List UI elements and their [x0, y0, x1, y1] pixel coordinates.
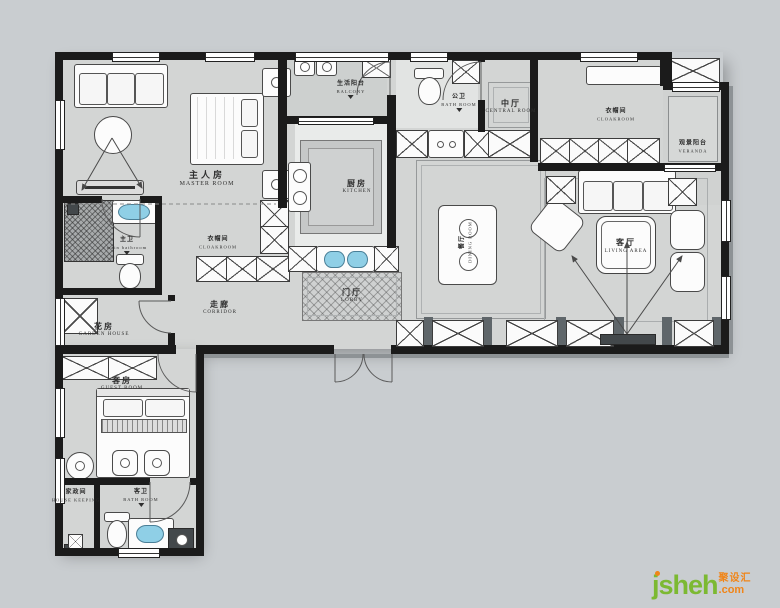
floor-drain-icon [68, 534, 83, 549]
room-label-guest: 客房 GUEST ROOM [101, 376, 143, 392]
room-label-guest-bath-cn: 客卫 [123, 489, 158, 496]
room-label-master-cloak-en: CLOAKROOM [199, 244, 237, 249]
window-left-garden [55, 298, 65, 346]
room-label-guest-bath: 客卫 BATH ROOM [123, 489, 158, 507]
wall-mbath-top-a [62, 196, 102, 203]
room-label-garden-cn: 花房 [79, 322, 130, 331]
room-label-balcony-en: BALCONY [337, 89, 366, 94]
room-label-master-bath: 主卫 main bathroom [107, 237, 147, 255]
coffee-table: 客厅 LIVING AREA [596, 216, 656, 274]
pillow [241, 99, 258, 127]
wall-bath-central-b [478, 100, 485, 132]
room-label-bath-public-en: BATH ROOM [441, 102, 476, 107]
room-label-dining: 餐厅 DINING ROOM [459, 221, 472, 263]
stool-cushion-icon [120, 458, 130, 468]
gbath-toilet-bowl [107, 520, 127, 548]
gbath-sink [136, 525, 164, 543]
wall-guest-bath-top-a [55, 478, 150, 485]
window-left-guest-1 [55, 388, 65, 438]
label-pointer-icon [456, 108, 462, 112]
washer-icon [322, 62, 332, 72]
pillow [103, 399, 143, 417]
room-label-corridor-cn: 走廊 [203, 300, 237, 309]
room-label-cloak2: 衣帽间 CLOAKROOM [597, 108, 635, 121]
guest-bed [96, 388, 190, 478]
room-label-guest-en: GUEST ROOM [101, 386, 143, 392]
room-label-dining-cn: 餐厅 [459, 221, 466, 263]
wall-bath-central-a [478, 52, 485, 62]
bed-stool [144, 450, 170, 476]
armchair [670, 252, 705, 292]
burner-icon [293, 191, 307, 205]
stool-cushion-icon [152, 458, 162, 468]
room-label-central-cn: 中厅 [485, 99, 536, 108]
hall-cabinet [488, 130, 532, 158]
gbath-washer [168, 528, 194, 550]
kitchen-cabinet [288, 246, 317, 272]
sofa-end-table [668, 178, 697, 206]
window-living-veranda [664, 164, 716, 172]
room-label-master-cloak: 衣帽间 CLOAKROOM [199, 236, 237, 249]
room-label-laundry-cn: 家政间 [52, 489, 100, 496]
master-cloak-wardrobe [256, 256, 290, 282]
wall-corner-column [660, 52, 672, 86]
label-pointer-icon [124, 251, 130, 255]
pillow [145, 399, 185, 417]
tv-screen [85, 186, 135, 189]
wall-guest-bath-top-b [190, 478, 203, 485]
window-bath-top [410, 52, 448, 62]
room-label-living-en: LIVING AREA [605, 249, 648, 254]
sofa-cushion [583, 181, 613, 211]
window-right-living-2 [721, 276, 731, 320]
bottom-window-unit [506, 320, 558, 347]
sofa-cushion [107, 73, 135, 105]
watermark-logo: jsheh 聚设汇 .com [652, 572, 752, 599]
bed-blanket-roll [101, 419, 187, 433]
master-sofa [74, 64, 168, 108]
label-pointer-icon [348, 95, 354, 99]
room-label-lobby: 门厅 LOBBY [341, 288, 363, 304]
bath-toilet-bowl [418, 77, 441, 105]
mbath-toilet-bowl [119, 263, 141, 289]
room-label-master-cn: 主人房 [180, 170, 235, 180]
room-label-master-en: MASTER ROOM [180, 181, 235, 188]
room-label-kitchen: 厨房 KITCHEN [343, 179, 372, 195]
room-label-bath-public: 公卫 BATH ROOM [441, 94, 476, 112]
room-label-lobby-en: LOBBY [341, 298, 363, 304]
room-label-garden-en: GARDEN HOUSE [79, 332, 130, 338]
room-label-laundry: 家政间 HOUSE KEEPING [52, 489, 100, 502]
room-label-guest-bath-en: BATH ROOM [123, 497, 158, 502]
wall-wing-right [196, 354, 204, 556]
master-tv-console [76, 180, 144, 195]
armchair [670, 210, 705, 250]
bottom-window-unit [396, 320, 424, 347]
kitchen-cabinet [374, 246, 399, 272]
cloakroom-wardrobe [569, 138, 601, 164]
wall-mbath-bottom [55, 288, 162, 295]
kitchen-sink-basin [324, 251, 345, 268]
sofa-cushion [135, 73, 164, 105]
stove [288, 162, 311, 212]
master-cloak-wardrobe [196, 256, 229, 282]
hall-console [428, 130, 464, 158]
room-label-veranda: 观景阳台 VERANDA [679, 140, 708, 153]
window-balcony-kitchen [298, 117, 374, 125]
brand-dot-icon [655, 571, 660, 576]
bed-blanket [197, 97, 237, 159]
window-master-top-2 [205, 52, 255, 62]
room-label-cloak2-en: CLOAKROOM [597, 116, 635, 121]
cloakroom-wardrobe [627, 138, 660, 164]
bath-cabinet [452, 60, 480, 84]
master-round-table [94, 116, 132, 154]
window-cloak2-top [580, 52, 638, 62]
room-label-corridor: 走廊 CORRIDOR [203, 300, 237, 316]
mbath-sink [118, 204, 150, 220]
master-cloak-wardrobe [226, 256, 259, 282]
master-cloak-wardrobe [260, 226, 289, 254]
bottom-window-unit [674, 320, 714, 347]
sofa-cushion [613, 181, 643, 211]
room-label-dining-en: DINING ROOM [467, 221, 472, 263]
wall-garden-bottom [55, 345, 176, 354]
cloakroom-wardrobe [598, 138, 630, 164]
wall-garden-right-a [168, 295, 175, 301]
pillow [241, 130, 258, 158]
brand-cn-text: 聚设汇 [719, 574, 752, 584]
room-label-living-cn: 客厅 [616, 237, 636, 248]
kitchen-sink-counter [316, 246, 375, 272]
brand-tld-text: .com [719, 585, 752, 596]
hall-cabinet [396, 130, 428, 158]
washer-icon [300, 62, 310, 72]
brand-text: jsheh [652, 572, 718, 599]
guest-side-table [66, 452, 94, 480]
room-label-central: 中厅 CENTRAL ROOM [485, 99, 536, 115]
wall-kitchen-right-b [387, 95, 396, 248]
room-label-bath-public-cn: 公卫 [441, 94, 476, 101]
wall-mbath-right [155, 196, 162, 295]
room-label-garden: 花房 GARDEN HOUSE [79, 322, 130, 338]
master-bed [190, 93, 264, 165]
room-label-cloak2-cn: 衣帽间 [597, 108, 635, 115]
cloakroom-wardrobe [540, 138, 572, 164]
room-label-master-bath-en: main bathroom [107, 245, 147, 250]
living-tv [600, 334, 656, 345]
burner-icon [293, 169, 307, 183]
living-sofa [578, 170, 676, 214]
room-label-corridor-en: CORRIDOR [203, 310, 237, 316]
window-right-living-1 [721, 200, 731, 242]
window-master-top-1 [112, 52, 160, 62]
window-wing-bottom [118, 548, 160, 558]
wall-garden-right-b [168, 333, 175, 347]
window-left-master [55, 100, 65, 150]
bed-stool [112, 450, 138, 476]
window-post [662, 317, 672, 345]
room-label-kitchen-en: KITCHEN [343, 189, 372, 195]
room-label-veranda-en: VERANDA [679, 148, 708, 153]
decor-icon [75, 461, 85, 471]
window-veranda-top [672, 82, 720, 92]
room-label-veranda-cn: 观景阳台 [679, 140, 708, 147]
sofa-cushion [79, 73, 107, 105]
room-label-central-en: CENTRAL ROOM [485, 109, 536, 115]
room-label-master: 主人房 MASTER ROOM [180, 170, 235, 188]
wall-bottom-left-seg [196, 345, 334, 354]
room-label-guest-cn: 客房 [101, 376, 143, 385]
room-label-kitchen-cn: 厨房 [343, 179, 372, 188]
floor-plan-canvas: 客厅 LIVING AREA [0, 0, 780, 608]
entry-door-arc [335, 354, 392, 382]
wall-master-right [278, 52, 287, 208]
room-label-balcony-cn: 生活阳台 [337, 81, 366, 88]
room-label-balcony: 生活阳台 BALCONY [337, 81, 366, 99]
washer-drum-icon [176, 534, 188, 546]
room-label-lobby-cn: 门厅 [341, 288, 363, 297]
ac-platform [666, 58, 720, 84]
bottom-window-unit [432, 320, 484, 347]
kitchen-sink-basin [347, 251, 368, 268]
handle-icon [437, 141, 444, 148]
label-pointer-icon [138, 503, 144, 507]
room-label-master-bath-cn: 主卫 [107, 237, 147, 244]
sofa-end-table [546, 176, 576, 204]
baseboard-bottom [196, 354, 729, 358]
window-balcony-top [295, 52, 389, 62]
room-label-laundry-en: HOUSE KEEPING [52, 497, 100, 502]
shower-head-icon [67, 203, 79, 215]
room-label-master-cloak-cn: 衣帽间 [199, 236, 237, 243]
handle-icon [449, 141, 456, 148]
hall-cabinet [464, 130, 491, 158]
cloakroom-island [586, 66, 662, 85]
coffee-table-top: 客厅 LIVING AREA [601, 221, 651, 269]
